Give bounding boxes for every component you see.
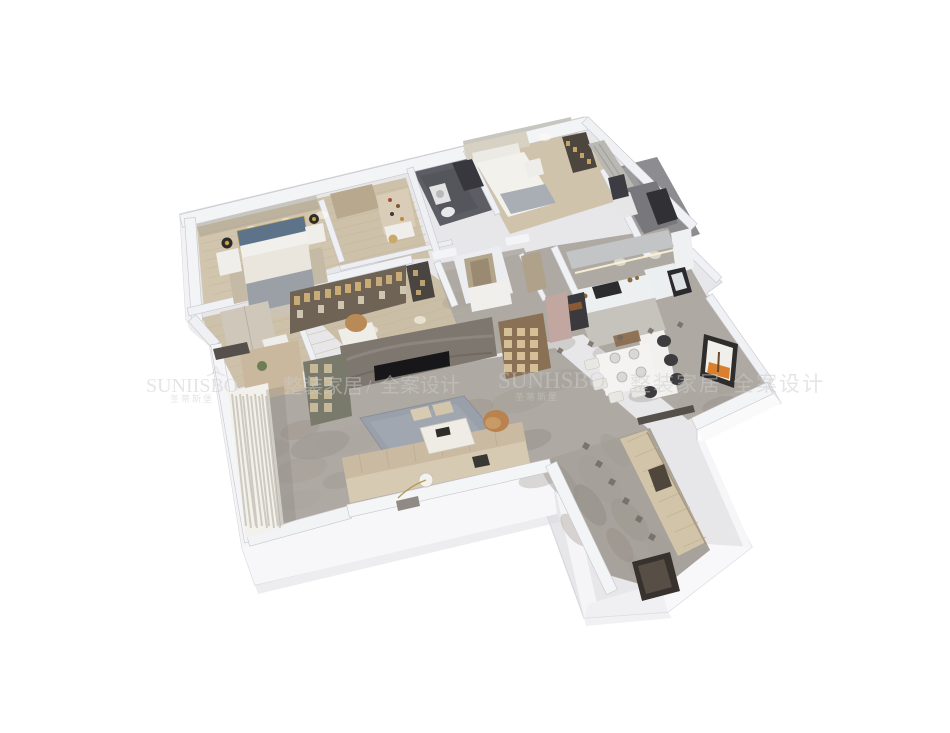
svg-text:圣蒂斯堡: 圣蒂斯堡 xyxy=(170,393,214,404)
svg-text:圣蒂斯堡: 圣蒂斯堡 xyxy=(515,391,559,402)
svg-text:全案设计: 全案设计 xyxy=(380,374,460,397)
svg-text:SUNHSBO: SUNHSBO xyxy=(498,368,605,393)
svg-text:全案设计: 全案设计 xyxy=(733,372,825,396)
svg-text:整装家居: 整装家居 xyxy=(283,375,363,398)
svg-text:整装家居: 整装家居 xyxy=(630,372,722,396)
svg-text:/: / xyxy=(366,376,372,398)
